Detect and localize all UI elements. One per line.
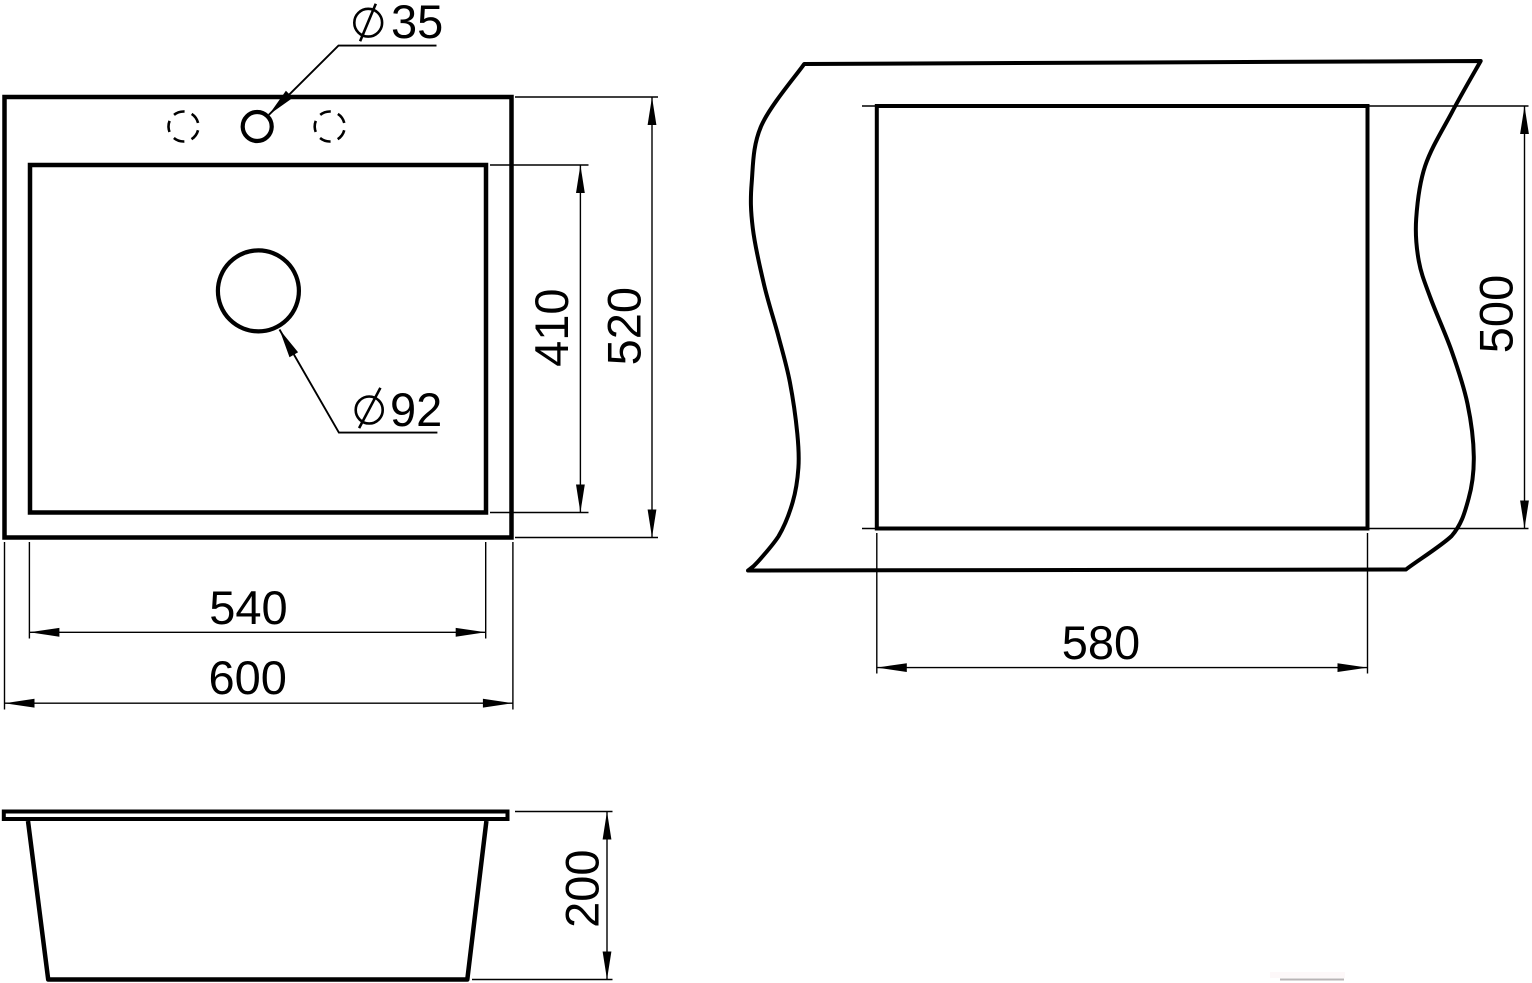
svg-text:520: 520 [598,287,651,365]
svg-text:92: 92 [390,383,442,436]
svg-text:540: 540 [209,581,287,634]
svg-text:580: 580 [1062,616,1140,669]
svg-text:35: 35 [391,0,443,48]
svg-text:500: 500 [1470,275,1523,353]
svg-text:200: 200 [555,849,608,927]
svg-text:410: 410 [525,288,578,366]
svg-text:600: 600 [208,651,286,704]
